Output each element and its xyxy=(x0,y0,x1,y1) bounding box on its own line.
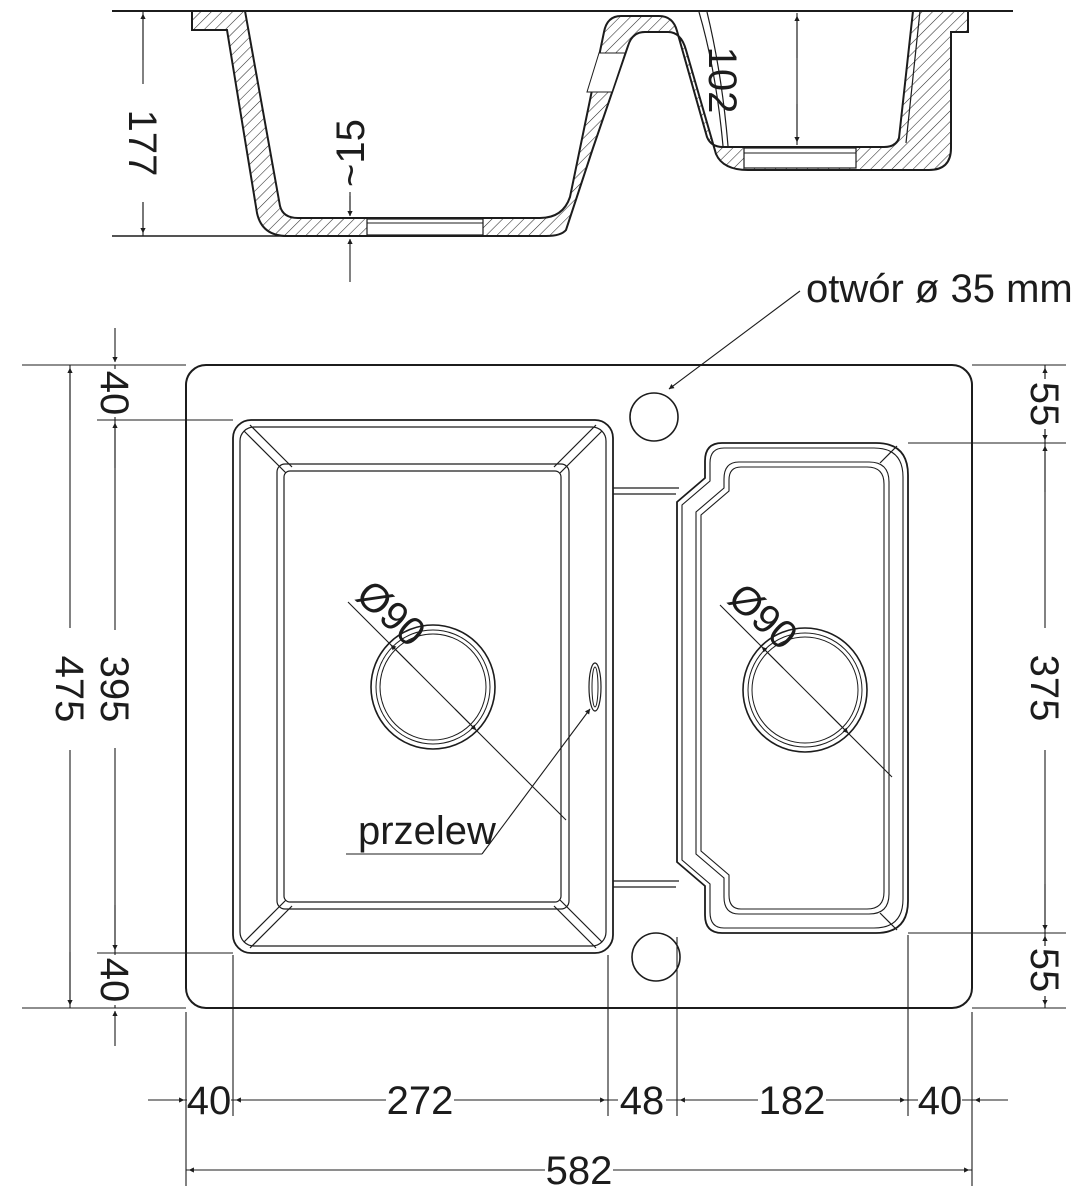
overflow-hole xyxy=(589,663,601,711)
dim-right-bottom: 55 xyxy=(1022,933,1066,1008)
sink-drawing-svg: 177 ~15 102 xyxy=(0,0,1073,1200)
divider-channel xyxy=(613,488,679,887)
dim-bowl1-height: 395 xyxy=(92,420,136,953)
sink-section-profile xyxy=(192,11,968,236)
dim-drain1-label: Ø90 xyxy=(348,572,434,655)
dim-bowl2-width-label: 182 xyxy=(759,1079,826,1123)
dim-right-top: 55 xyxy=(1022,365,1066,443)
bowl1-outer-edge-2 xyxy=(240,427,606,946)
dim-bottom-thickness: ~15 xyxy=(329,112,373,282)
dim-total-depth-label: 177 xyxy=(120,110,164,177)
dim-bottom-thickness-label: ~15 xyxy=(329,119,373,187)
extension-lines xyxy=(22,365,1066,1186)
dim-total-width: 582 xyxy=(186,1148,972,1193)
dim-bowl2-depth: 102 xyxy=(700,13,797,145)
tap-hole-bottom xyxy=(632,933,680,981)
dim-total-height: 475 xyxy=(47,365,91,1008)
dim-top-margin-label: 40 xyxy=(92,371,136,416)
cross-section-view: 177 ~15 102 xyxy=(112,11,1013,282)
dim-bowl1-width-label: 272 xyxy=(387,1079,454,1123)
dim-bowl1-height-label: 395 xyxy=(92,656,136,723)
bowl1-corner-chamfers xyxy=(244,425,602,948)
dim-right-bottom-label: 55 xyxy=(1022,948,1066,993)
dim-left-margin-label: 40 xyxy=(187,1079,232,1123)
bowl2-inner-edge xyxy=(696,462,889,914)
dim-bowl2-height: 375 xyxy=(1022,443,1066,933)
bowl1-drain-recess xyxy=(367,219,483,235)
bowl2-inner-edge-2 xyxy=(701,467,884,909)
dim-total-width-label: 582 xyxy=(546,1149,613,1193)
technical-drawing-page: 177 ~15 102 xyxy=(0,0,1073,1200)
dim-right-margin-label: 40 xyxy=(918,1079,963,1123)
dim-total-depth: 177 xyxy=(120,11,164,236)
dim-total-height-label: 475 xyxy=(47,656,91,723)
dim-divider-width-label: 48 xyxy=(620,1079,665,1123)
dim-bowl2-depth-label: 102 xyxy=(700,47,744,114)
overflow-callout: przelew xyxy=(346,709,590,854)
dim-bowl2-height-label: 375 xyxy=(1022,655,1066,722)
dim-right-top-label: 55 xyxy=(1022,382,1066,427)
overflow-label: przelew xyxy=(358,809,496,853)
tap-hole-callout: otwór ø 35 mm xyxy=(669,267,1073,389)
dim-bottom-margin: 40 xyxy=(92,953,136,1046)
dim-top-margin: 40 xyxy=(92,328,136,420)
dim-drain2-label: Ø90 xyxy=(720,575,806,658)
dim-bottom-margin-label: 40 xyxy=(92,958,136,1003)
tap-hole-top xyxy=(630,393,678,441)
plan-view: Ø90 Ø90 otwór ø 35 mm przelew xyxy=(22,267,1073,1193)
bowl1-outer-edge xyxy=(233,420,613,953)
bowl2-drain-recess xyxy=(744,148,856,168)
dim-bottom-row: 40 272 48 182 40 xyxy=(148,1078,1008,1123)
tap-hole-label: otwór ø 35 mm xyxy=(806,267,1073,311)
bowl2-outer-edge-2 xyxy=(682,448,903,928)
